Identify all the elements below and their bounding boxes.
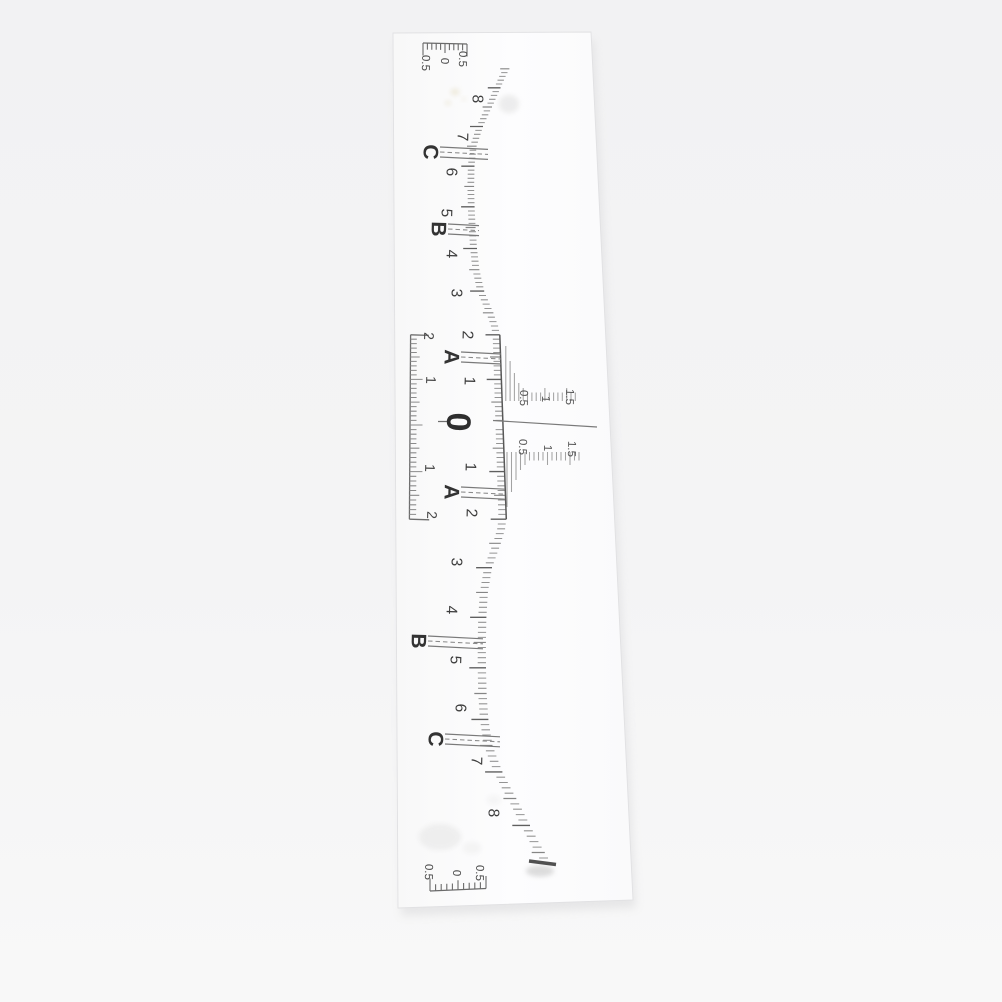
number-label: 2 (458, 330, 475, 339)
box-number-label: 2 (424, 511, 440, 519)
end-scale-number-label: 0.5 (419, 55, 431, 71)
comb-number-label: 0.5 (516, 439, 528, 455)
stain-smudge (462, 97, 466, 101)
box-number-label: 1 (423, 376, 439, 384)
number-label: 1 (461, 462, 478, 471)
number-label: 8 (468, 94, 485, 103)
photo-scene: 123456781234567821120.511.50.511.50.500.… (0, 0, 1002, 1002)
comb-number-label: 1 (541, 445, 553, 452)
letter-label: C (423, 731, 446, 747)
stain-smudge (487, 795, 501, 805)
eyebrow-ruler-photo: 123456781234567821120.511.50.511.50.500.… (0, 0, 1002, 1002)
end-scale-number-label: 0 (450, 870, 462, 877)
comb-number-label: 1 (539, 396, 551, 403)
letter-label: B (426, 221, 449, 237)
comb-number-label: 0.5 (517, 390, 529, 406)
letter-label: B (406, 633, 429, 649)
stain-smudge (526, 866, 554, 877)
end-scale-number-label: 0 (438, 58, 450, 65)
number-label: 5 (446, 655, 463, 664)
stain-smudge (463, 842, 481, 854)
number-label: 1 (460, 376, 477, 385)
box-bracket (409, 519, 429, 520)
center-zero-label: 0 (439, 412, 477, 432)
number-label: 4 (442, 249, 459, 258)
number-label: 3 (447, 288, 464, 297)
stain-smudge (419, 824, 461, 850)
number-label: 2 (462, 508, 479, 517)
end-scale-number-label: 0.5 (456, 51, 468, 67)
number-label: 4 (442, 605, 459, 614)
comb-number-label: 1.5 (563, 389, 575, 405)
letter-label: C (418, 144, 441, 160)
number-label: 6 (451, 703, 468, 712)
number-label: 7 (467, 756, 484, 765)
number-label: 8 (484, 808, 501, 817)
number-label: 5 (437, 208, 454, 217)
end-scale-number-label: 0.5 (473, 865, 485, 881)
box-number-label: 2 (421, 332, 437, 340)
number-label: 7 (453, 132, 470, 141)
stain-smudge (499, 95, 519, 113)
stain-smudge (445, 101, 451, 106)
letter-label: A (439, 484, 462, 500)
number-label: 3 (447, 557, 464, 566)
end-scale-number-label: 0.5 (422, 864, 434, 880)
stain-smudge (451, 89, 460, 96)
box-number-label: 1 (422, 464, 438, 472)
comb-number-label: 1.5 (565, 441, 577, 457)
letter-label: A (439, 349, 462, 365)
number-label: 6 (442, 167, 459, 176)
